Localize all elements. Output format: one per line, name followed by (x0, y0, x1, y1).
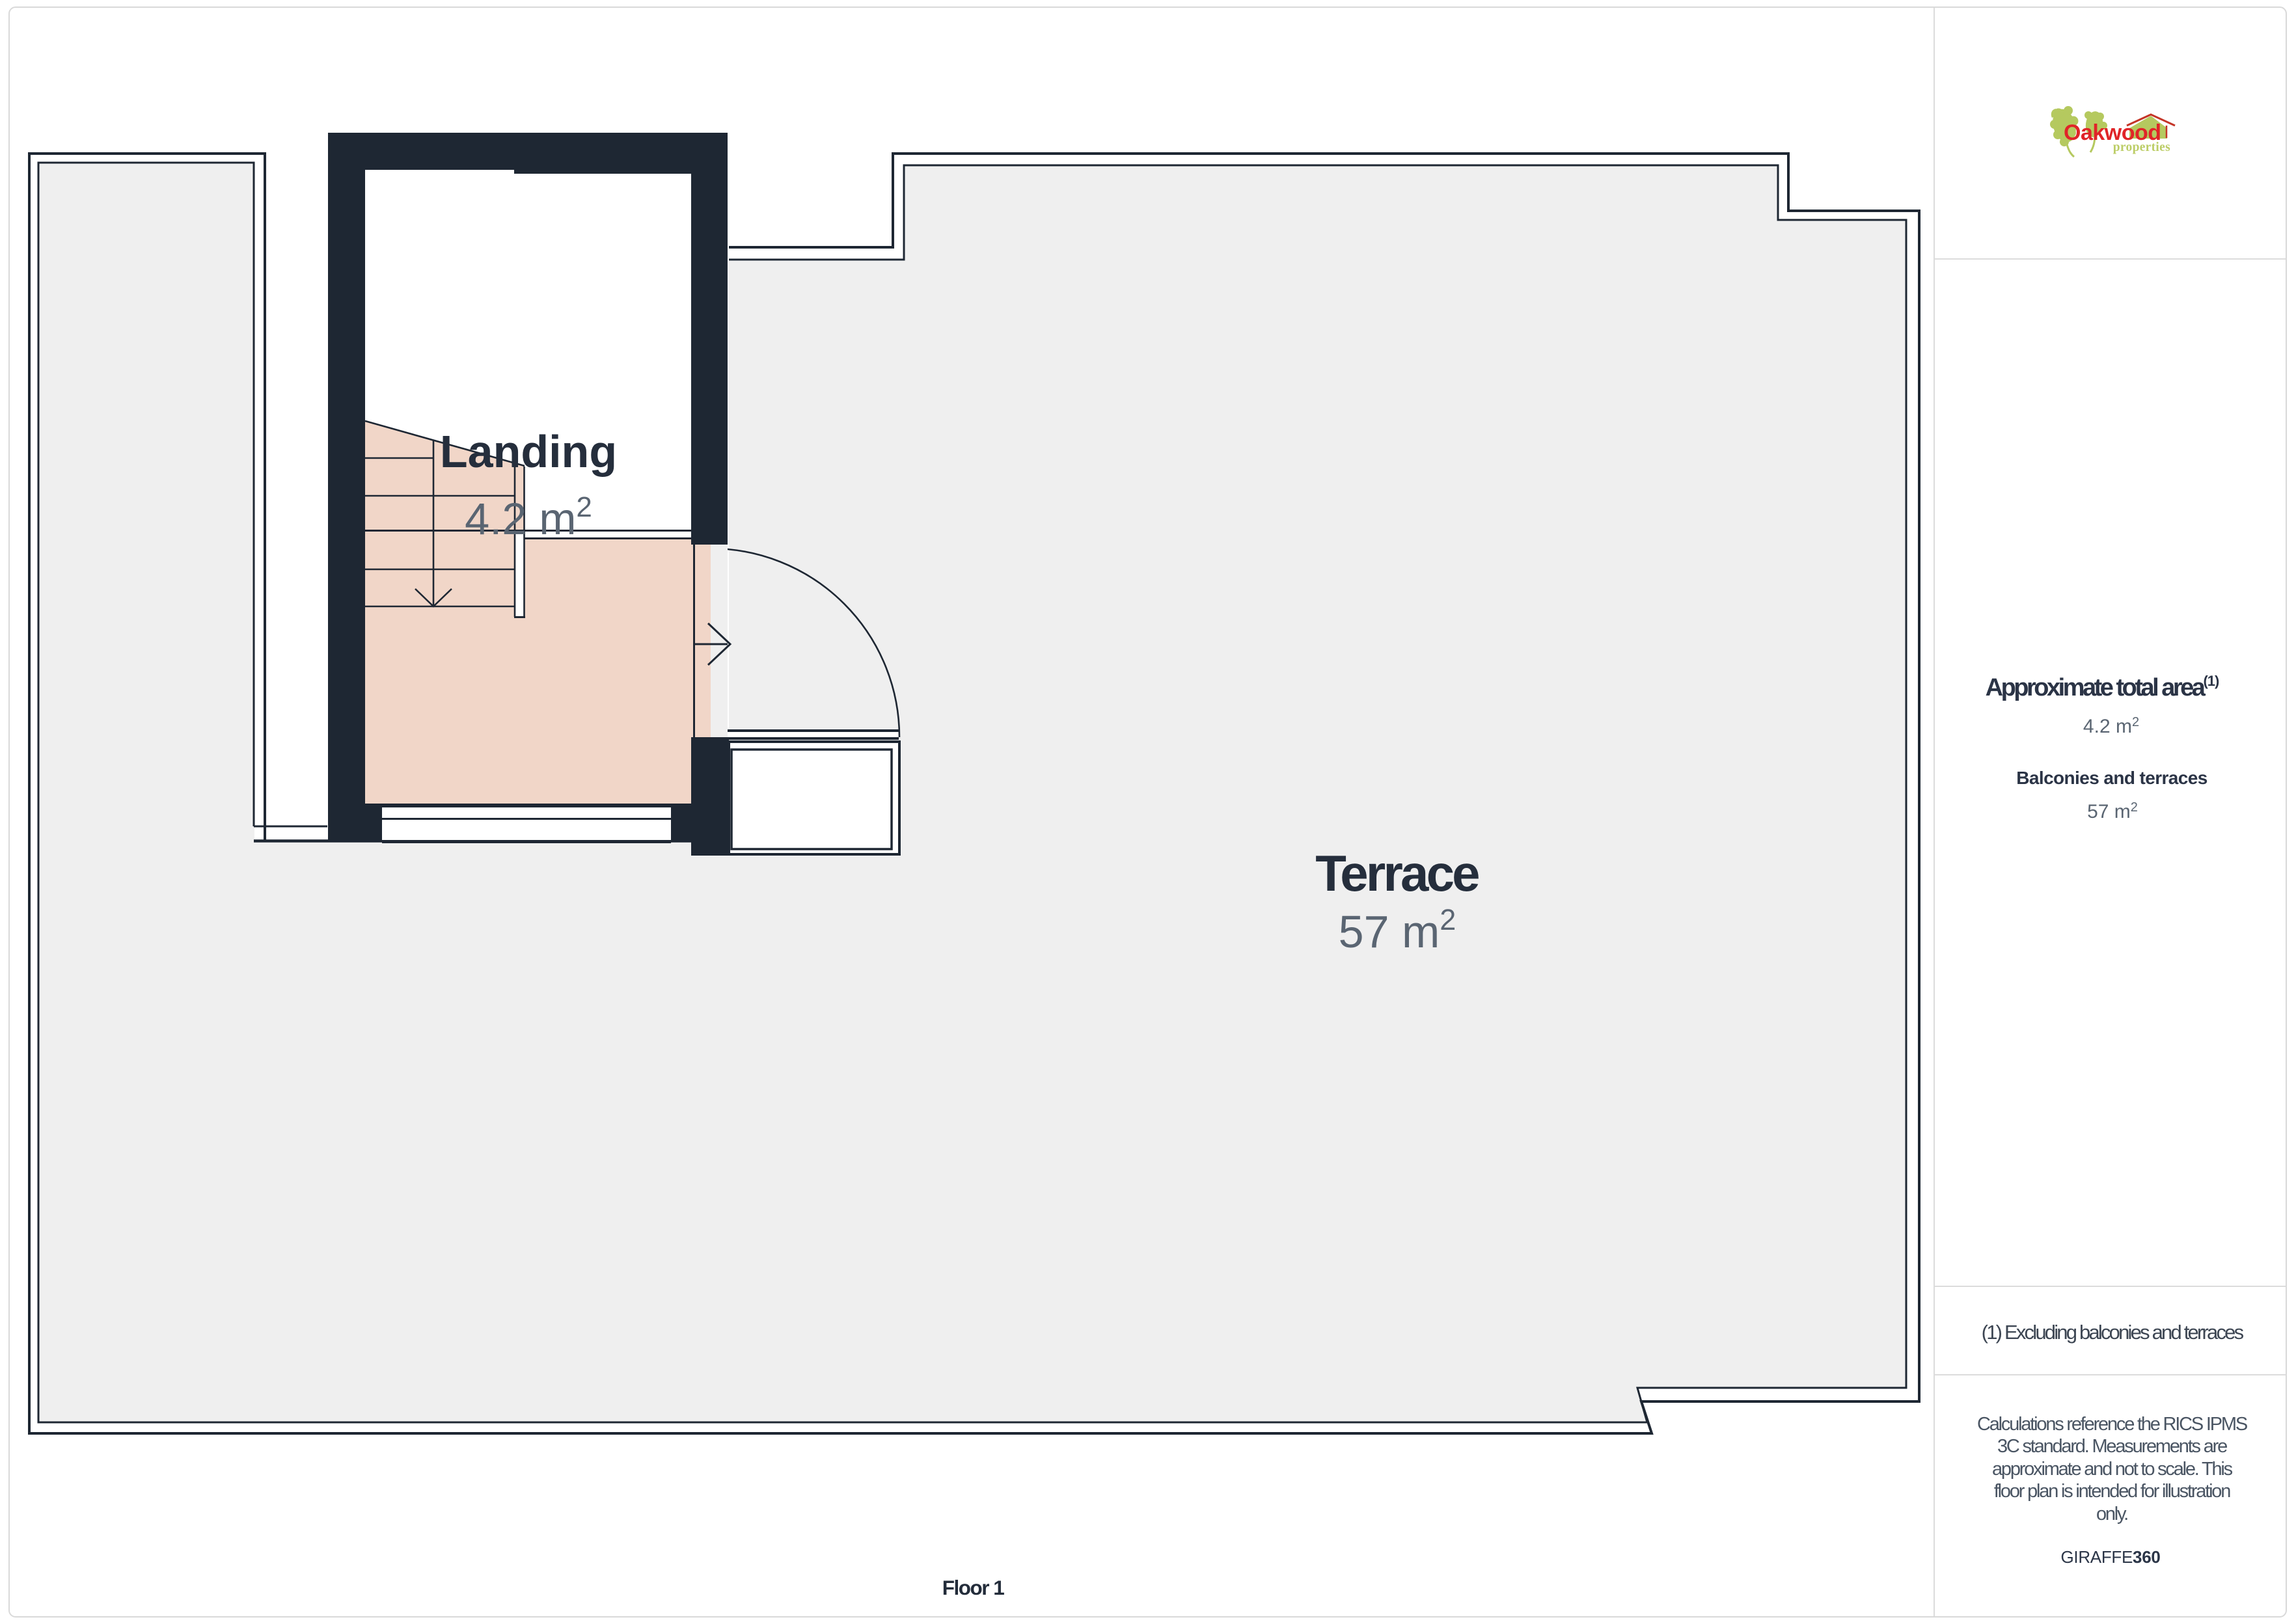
svg-text:floor plan is intended for ill: floor plan is intended for illustration (1994, 1481, 2230, 1502)
svg-text:4.2 m2: 4.2 m2 (465, 491, 592, 544)
svg-text:Floor 1: Floor 1 (942, 1576, 1004, 1599)
svg-text:Balconies and terraces: Balconies and terraces (2016, 768, 2207, 788)
svg-text:57 m2: 57 m2 (1339, 903, 1456, 957)
svg-text:Terrace: Terrace (1315, 845, 1479, 902)
svg-text:(1) Excluding balconies and te: (1) Excluding balconies and terraces (1982, 1321, 2244, 1344)
svg-text:only.: only. (2096, 1504, 2127, 1524)
svg-text:4.2 m2: 4.2 m2 (2083, 715, 2139, 737)
svg-text:3C standard. Measurements are: 3C standard. Measurements are (1997, 1436, 2227, 1457)
svg-text:Landing: Landing (440, 426, 617, 477)
svg-text:GIRAFFE360: GIRAFFE360 (2060, 1547, 2160, 1567)
svg-text:Calculations reference the RIC: Calculations reference the RICS IPMS (1977, 1414, 2248, 1435)
svg-text:properties: properties (2113, 141, 2170, 154)
svg-text:approximate and not to scale.: approximate and not to scale. This (1992, 1459, 2233, 1480)
svg-text:Approximate total area(1): Approximate total area(1) (1986, 673, 2219, 701)
svg-text:57 m2: 57 m2 (2087, 800, 2138, 822)
